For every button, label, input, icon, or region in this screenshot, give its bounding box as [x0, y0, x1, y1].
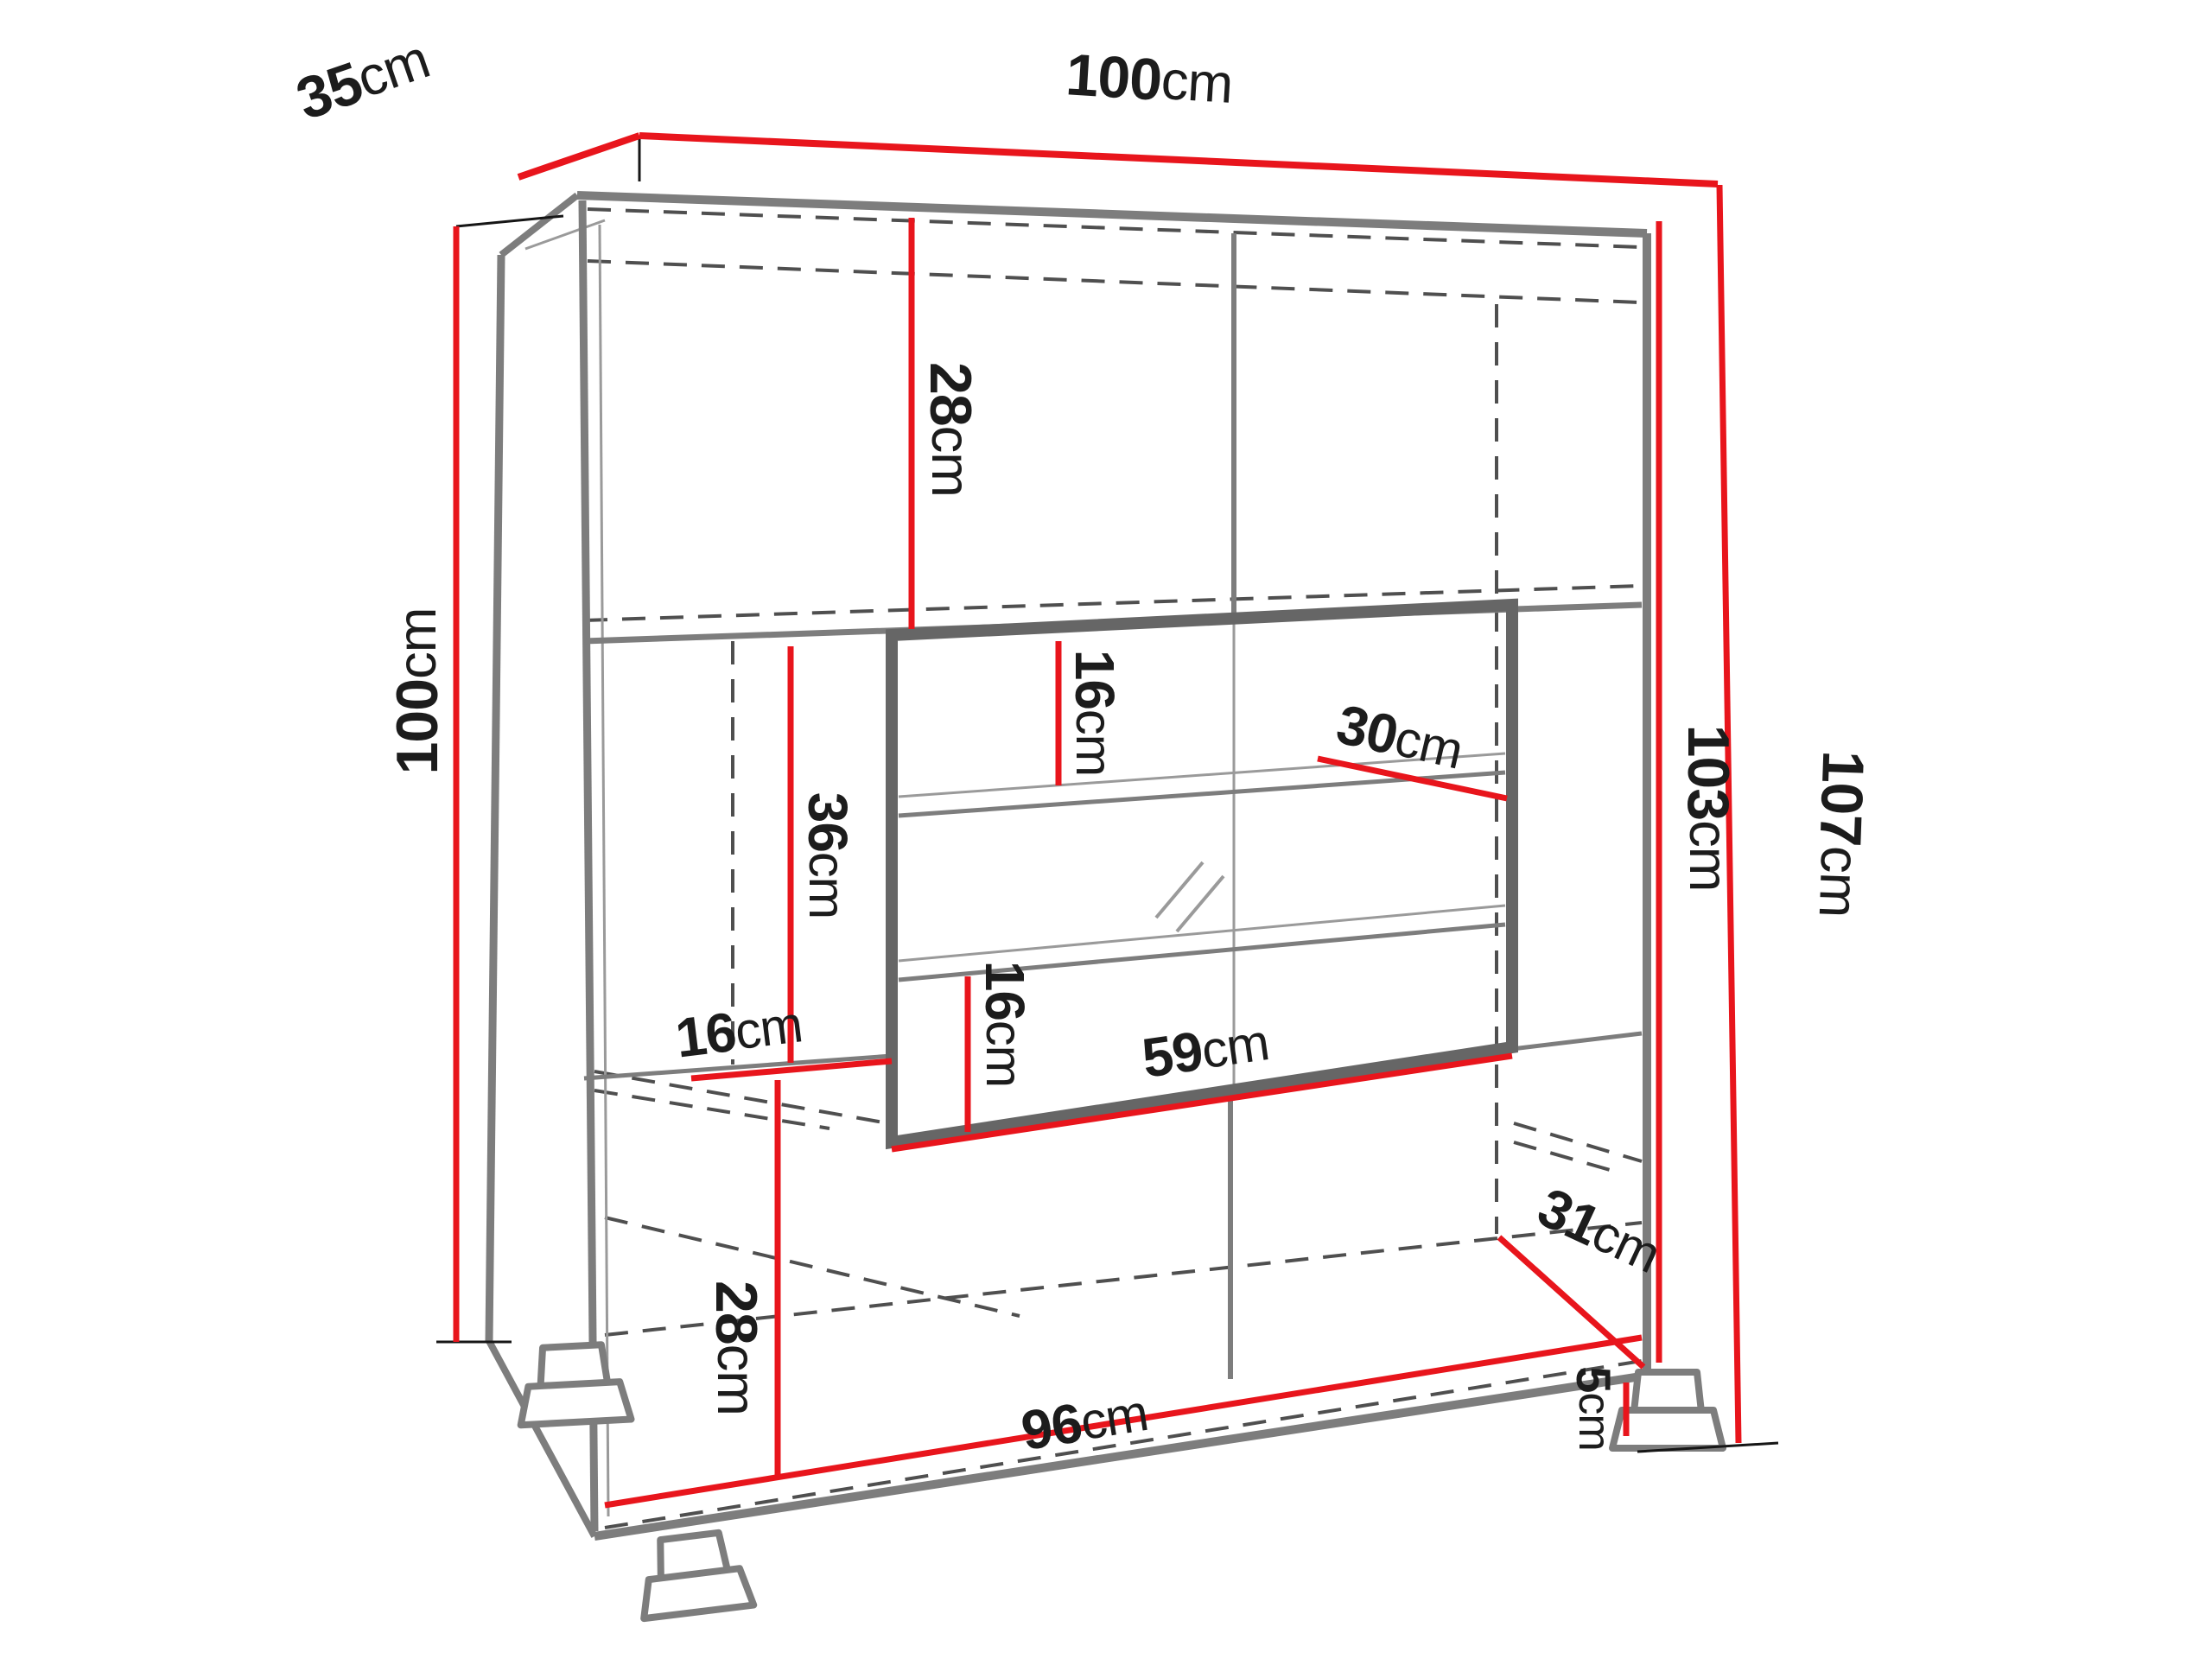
dashed-lower-shelf-right-2 — [1514, 1142, 1616, 1172]
dim-label-showcase-width: 59cm — [1138, 1010, 1272, 1090]
foot-front-left — [634, 1529, 753, 1618]
dim-label-total-height-right: 107cm — [1805, 749, 1877, 918]
dimension-labels: 35cm100cm100cm28cm16cm30cm36cm16cm16cm59… — [289, 27, 1876, 1462]
dashed-bottom-left-diagonal — [605, 1217, 1020, 1316]
dim-label-top-depth: 35cm — [289, 27, 437, 133]
dim-label-lower-compartment-height: 28cm — [703, 1281, 769, 1415]
cabinet-feet — [517, 1344, 1723, 1618]
dim-label-showcase-upper-gap: 16cm — [1064, 650, 1126, 777]
left-panel-top-edge — [501, 195, 577, 255]
dim-label-showcase-lower-gap: 16cm — [974, 961, 1036, 1088]
lower-shelf-right — [1512, 1033, 1642, 1049]
cabinet-diagram-svg: 35cm100cm100cm28cm16cm30cm36cm16cm16cm59… — [0, 0, 2212, 1659]
dim-label-foot-height: 5cm — [1567, 1366, 1622, 1451]
dim-label-top-width: 100cm — [1064, 41, 1234, 118]
dim-label-showcase-left-height: 36cm — [797, 792, 859, 919]
dim-label-left-opening-width: 16cm — [672, 992, 805, 1069]
dimension-diagram: 35cm100cm100cm28cm16cm30cm36cm16cm16cm59… — [0, 0, 2212, 1659]
dashed-top-back-edge — [588, 261, 1640, 302]
outer-left-edge — [489, 255, 501, 1341]
front-left-edge — [582, 200, 594, 1531]
dim-label-bottom-width: 96cm — [1017, 1381, 1152, 1462]
dashed-lower-shelf-left-2 — [594, 1090, 829, 1128]
cabinet-structure — [489, 195, 1647, 1536]
dashed-lower-shelf-right-1 — [1514, 1123, 1642, 1161]
dim-label-upper-compartment-height: 28cm — [918, 362, 983, 497]
dimension-lines — [456, 136, 1738, 1505]
front-left-inner-line — [600, 225, 608, 1516]
dim-label-body-height-right: 103cm — [1675, 725, 1741, 892]
dim-label-left-height: 100cm — [385, 608, 450, 775]
foot-back-left — [517, 1344, 631, 1426]
